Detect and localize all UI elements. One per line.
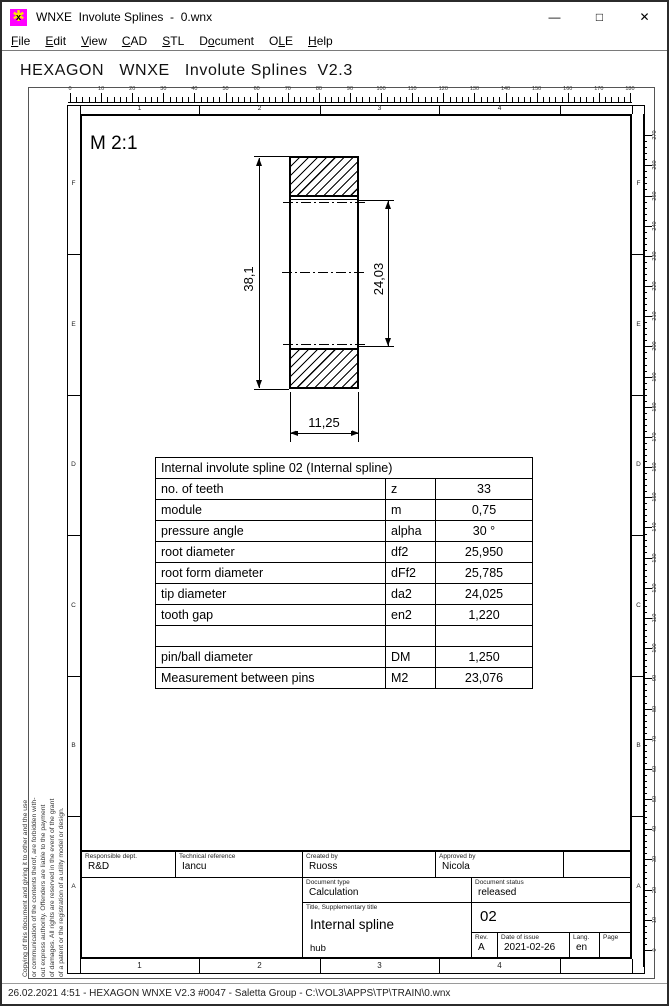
menu-item-help[interactable]: Help — [302, 34, 339, 48]
dimension-label-outer: 38,1 — [241, 251, 257, 307]
ruler-number: 180 — [620, 86, 640, 92]
ruler-number: 40 — [184, 86, 204, 92]
field-label: Document type — [303, 878, 472, 886]
reference-line-bottom — [283, 344, 367, 345]
arrowhead-icon — [256, 380, 262, 388]
dimension-label-width: 11,25 — [296, 415, 352, 431]
menu-item-edit[interactable]: Edit — [39, 34, 72, 48]
approved-by-cell: Approved by Nicola — [435, 852, 564, 877]
spline-table-body: Internal involute spline 02 (Internal sp… — [156, 458, 533, 689]
ruler-number: 30 — [153, 86, 173, 92]
zone-row-label: E — [67, 321, 80, 328]
row-symbol — [386, 626, 436, 647]
frame-zones-right: FEDCBA — [632, 114, 645, 959]
row-label: root diameter — [156, 542, 386, 563]
row-label: tip diameter — [156, 584, 386, 605]
notice-line: of a patent or the registration of a uti… — [58, 695, 67, 977]
ruler-number: 80 — [309, 86, 329, 92]
ruler-tick — [101, 93, 102, 102]
responsible-dept-cell: Responsible dept. R&D — [82, 852, 176, 877]
menu-item-view[interactable]: View — [75, 34, 113, 48]
spline-data-table: Internal involute spline 02 (Internal sp… — [155, 457, 533, 689]
field-label: Created by — [303, 852, 436, 860]
field-value: 2021-02-26 — [498, 941, 570, 953]
extension-line — [254, 156, 289, 157]
row-label: pin/ball diameter — [156, 647, 386, 668]
row-value: 24,025 — [436, 584, 533, 605]
rev-cell: Rev. A — [471, 932, 498, 957]
dimension-line-outer — [259, 158, 260, 388]
zone-column-label: 4 — [439, 961, 560, 970]
ruler-number: 40 — [647, 821, 663, 837]
field-value: Nicola — [436, 860, 564, 872]
field-label: Document status — [472, 878, 630, 886]
ruler-number: 190 — [647, 369, 663, 385]
menu-item-document[interactable]: Document — [193, 34, 260, 48]
ruler-number: 50 — [647, 791, 663, 807]
zone-column-label: 3 — [320, 961, 439, 970]
ruler-number: 140 — [496, 86, 516, 92]
zone-divider — [632, 254, 645, 255]
dimension-line-inner — [388, 201, 389, 346]
ruler-tick — [474, 93, 475, 102]
ruler-number: 110 — [647, 610, 663, 626]
table-row: root diameterdf225,950 — [156, 542, 533, 563]
zone-row-label: B — [632, 742, 645, 749]
empty-cell — [82, 877, 303, 957]
row-value: 33 — [436, 479, 533, 500]
document-type-cell: Document type Calculation — [302, 877, 472, 903]
ruler-number: 120 — [647, 580, 663, 596]
frame-zones-top: 1234 — [67, 105, 645, 114]
ruler-number: 140 — [647, 519, 663, 535]
row-symbol: en2 — [386, 605, 436, 626]
field-value: en — [570, 941, 600, 953]
table-row — [156, 626, 533, 647]
window-controls: — □ ✕ — [532, 10, 667, 24]
row-symbol: m — [386, 500, 436, 521]
notice-line: or communication of the contents therof,… — [31, 695, 40, 977]
zone-row-label: F — [67, 180, 80, 187]
ruler-number: 250 — [647, 188, 663, 204]
ruler-number: 10 — [647, 912, 663, 928]
ruler-number: 220 — [647, 278, 663, 294]
frame-zones-left: FEDCBA — [67, 114, 80, 959]
table-title-row: Internal involute spline 02 (Internal sp… — [156, 458, 533, 479]
zone-column-label: 3 — [320, 105, 439, 112]
copyright-notice: Copying of this document and giving it t… — [22, 695, 66, 977]
row-value: 25,950 — [436, 542, 533, 563]
zone-row-label: A — [67, 883, 80, 890]
field-value: Ruoss — [303, 860, 436, 872]
arrowhead-icon — [256, 158, 262, 166]
zone-column-label: 4 — [439, 105, 560, 112]
statusbar: 26.02.2021 4:51 - HEXAGON WNXE V2.3 #004… — [2, 983, 667, 1004]
ruler-number: 210 — [647, 308, 663, 324]
ruler-tick — [506, 93, 507, 102]
zone-divider — [632, 959, 633, 974]
ruler-number: 160 — [558, 86, 578, 92]
title-cell: Title, Supplementary title Internal spli… — [302, 902, 472, 957]
zone-divider — [632, 535, 645, 536]
ruler-tick — [132, 93, 133, 102]
icon-letter: x — [10, 10, 27, 25]
table-row: no. of teethz33 — [156, 479, 533, 500]
table-row: tip diameterda224,025 — [156, 584, 533, 605]
ruler-number: 20 — [122, 86, 142, 92]
zone-row-label: F — [632, 180, 645, 187]
zone-column-label: 2 — [199, 105, 320, 112]
ruler-tick — [350, 93, 351, 102]
ruler-number: 130 — [464, 86, 484, 92]
ruler-number: 10 — [91, 86, 111, 92]
row-value: 23,076 — [436, 668, 533, 689]
ruler-number: 130 — [647, 550, 663, 566]
field-label: Page — [600, 933, 630, 941]
center-line — [282, 272, 367, 273]
field-value — [600, 941, 630, 942]
zone-divider — [67, 816, 80, 817]
reference-line-top — [283, 202, 367, 203]
ruler-number: 200 — [647, 338, 663, 354]
doc-number: 02 — [472, 903, 630, 925]
maximize-button[interactable]: □ — [577, 10, 622, 24]
field-label: Title, Supplementary title — [303, 903, 472, 911]
field-label: Approved by — [436, 852, 564, 860]
ruler-number: 120 — [433, 86, 453, 92]
row-symbol: df2 — [386, 542, 436, 563]
zone-row-label: E — [632, 321, 645, 328]
hatch-band-bottom — [291, 348, 357, 387]
menu-item-stl[interactable]: STL — [156, 34, 190, 48]
row-symbol: DM — [386, 647, 436, 668]
field-value: R&D — [82, 860, 176, 872]
frame-zones-bottom: 1234 — [67, 959, 645, 974]
ruler-tick — [599, 93, 600, 102]
zone-divider — [632, 105, 633, 114]
ruler-number: 70 — [647, 731, 663, 747]
table-row: Measurement between pinsM223,076 — [156, 668, 533, 689]
ruler-number: 270 — [647, 127, 663, 143]
zone-divider — [560, 105, 561, 114]
row-value: 1,220 — [436, 605, 533, 626]
row-symbol: alpha — [386, 521, 436, 542]
field-value: Calculation — [303, 886, 472, 898]
ruler-number: 110 — [402, 86, 422, 92]
row-value: 1,250 — [436, 647, 533, 668]
ruler-number: 20 — [647, 882, 663, 898]
ruler-number: 70 — [278, 86, 298, 92]
row-label: Measurement between pins — [156, 668, 386, 689]
ruler-number: 170 — [647, 429, 663, 445]
menu-item-file[interactable]: File — [5, 34, 36, 48]
table-row: root form diameterdFf225,785 — [156, 563, 533, 584]
empty-cell — [563, 852, 630, 877]
zone-divider — [67, 254, 80, 255]
row-label — [156, 626, 386, 647]
copyright-text: Copying of this document and giving it t… — [22, 695, 66, 977]
menubar: FileEditViewCADSTLDocumentOLEHelp — [2, 32, 667, 51]
dimension-label-inner: 24,03 — [371, 251, 387, 307]
ruler-number: 90 — [647, 670, 663, 686]
notice-line: out express authority. Offenders are lia… — [40, 695, 49, 977]
field-value: Iancu — [176, 860, 303, 872]
date-of-issue-cell: Date of issue 2021-02-26 — [497, 932, 570, 957]
row-label: root form diameter — [156, 563, 386, 584]
tip-diameter-line-top — [291, 199, 357, 200]
zone-row-label: A — [632, 883, 645, 890]
field-value: A — [472, 941, 498, 953]
ruler-number: 90 — [340, 86, 360, 92]
ruler-tick — [443, 93, 444, 102]
ruler-number: 100 — [371, 86, 391, 92]
row-label: module — [156, 500, 386, 521]
doc-number-cell: 02 — [471, 902, 630, 933]
lang-cell: Lang. en — [569, 932, 600, 957]
extension-line — [254, 389, 289, 390]
created-by-cell: Created by Ruoss — [302, 852, 436, 877]
zone-divider — [632, 816, 645, 817]
scale-label: M 2:1 — [90, 133, 138, 155]
zone-row-label: D — [67, 461, 80, 468]
drawing-title: Internal spline — [303, 911, 472, 932]
row-value: 25,785 — [436, 563, 533, 584]
row-label: tooth gap — [156, 605, 386, 626]
close-button[interactable]: ✕ — [622, 10, 667, 24]
app-header: HEXAGON WNXE Involute Splines V2.3 — [20, 62, 353, 80]
arrowhead-icon — [385, 201, 391, 209]
menu-item-cad[interactable]: CAD — [116, 34, 153, 48]
titlebar[interactable]: ✱ x WNXE Involute Splines - 0.wnx — □ ✕ — [2, 2, 667, 32]
notice-line: Copying of this document and giving it t… — [22, 695, 31, 977]
title-block: Responsible dept. R&D Technical referenc… — [80, 850, 632, 959]
window-title: WNXE Involute Splines - 0.wnx — [36, 10, 212, 24]
technical-reference-cell: Technical reference Iancu — [175, 852, 303, 877]
ruler-number: 80 — [647, 701, 663, 717]
table-row: pressure anglealpha30 ° — [156, 521, 533, 542]
ruler-number: 50 — [216, 86, 236, 92]
row-symbol: z — [386, 479, 436, 500]
ruler-tick — [288, 93, 289, 102]
ruler-number: 60 — [647, 761, 663, 777]
app-icon: ✱ x — [10, 9, 27, 26]
field-label: Technical reference — [176, 852, 303, 860]
table-title: Internal involute spline 02 (Internal sp… — [156, 458, 533, 479]
zone-row-label: B — [67, 742, 80, 749]
ruler-tick — [381, 93, 382, 102]
table-row: tooth gapen21,220 — [156, 605, 533, 626]
hatch-band-top — [291, 158, 357, 197]
ruler-number: 100 — [647, 640, 663, 656]
arrowhead-icon — [351, 430, 359, 436]
zone-divider — [632, 676, 645, 677]
tip-diameter-line-bottom — [291, 348, 357, 349]
zone-divider — [67, 676, 80, 677]
ruler-number: 60 — [247, 86, 267, 92]
ruler-number: 180 — [647, 399, 663, 415]
ruler-tick — [257, 93, 258, 102]
ruler-number: 170 — [589, 86, 609, 92]
ruler-number: 230 — [647, 248, 663, 264]
row-value: 0,75 — [436, 500, 533, 521]
ruler-tick — [194, 93, 195, 102]
ruler-tick — [319, 93, 320, 102]
zone-row-label: C — [632, 602, 645, 609]
minimize-button[interactable]: — — [532, 10, 577, 24]
row-symbol: dFf2 — [386, 563, 436, 584]
ruler-number: 150 — [647, 489, 663, 505]
row-label: pressure angle — [156, 521, 386, 542]
app-window: ✱ x WNXE Involute Splines - 0.wnx — □ ✕ … — [0, 0, 669, 1006]
zone-row-label: D — [632, 461, 645, 468]
page-cell: Page — [599, 932, 630, 957]
ruler-number: 150 — [527, 86, 547, 92]
ruler-number: 0 — [60, 86, 80, 92]
ruler-number: 260 — [647, 157, 663, 173]
row-symbol: da2 — [386, 584, 436, 605]
ruler-number: 240 — [647, 218, 663, 234]
zone-column-label: 1 — [80, 961, 199, 970]
field-label: Lang. — [570, 933, 600, 941]
zone-row-label: C — [67, 602, 80, 609]
row-value — [436, 626, 533, 647]
zone-column-label: 1 — [80, 105, 199, 112]
arrowhead-icon — [385, 338, 391, 346]
ruler-tick — [412, 93, 413, 102]
ruler-number: 160 — [647, 459, 663, 475]
ruler-tick — [537, 93, 538, 102]
field-label: Responsible dept. — [82, 852, 176, 860]
ruler-top-baseline — [68, 102, 632, 103]
extension-line — [359, 346, 394, 347]
ruler-tick — [568, 93, 569, 102]
zone-column-label: 2 — [199, 961, 320, 970]
dimension-line-width — [290, 433, 359, 434]
zone-divider — [560, 959, 561, 974]
ruler-number: 30 — [647, 851, 663, 867]
notice-line: of damages. All rights are reserved in t… — [49, 695, 58, 977]
table-row: pin/ball diameterDM1,250 — [156, 647, 533, 668]
ruler-tick — [70, 93, 71, 102]
zone-divider — [67, 395, 80, 396]
row-value: 30 ° — [436, 521, 533, 542]
field-label: Rev. — [472, 933, 498, 941]
zone-divider — [67, 535, 80, 536]
menu-item-ole[interactable]: OLE — [263, 34, 299, 48]
zone-divider — [632, 395, 645, 396]
row-symbol: M2 — [386, 668, 436, 689]
drawing-subtitle: hub — [310, 943, 326, 954]
field-value: released — [472, 886, 630, 898]
ruler-number: 0 — [647, 942, 663, 958]
ruler-tick — [163, 93, 164, 102]
document-status-cell: Document status released — [471, 877, 630, 903]
row-label: no. of teeth — [156, 479, 386, 500]
ruler-tick — [630, 93, 631, 102]
field-label: Date of issue — [498, 933, 570, 941]
table-row: modulem0,75 — [156, 500, 533, 521]
ruler-tick — [226, 93, 227, 102]
